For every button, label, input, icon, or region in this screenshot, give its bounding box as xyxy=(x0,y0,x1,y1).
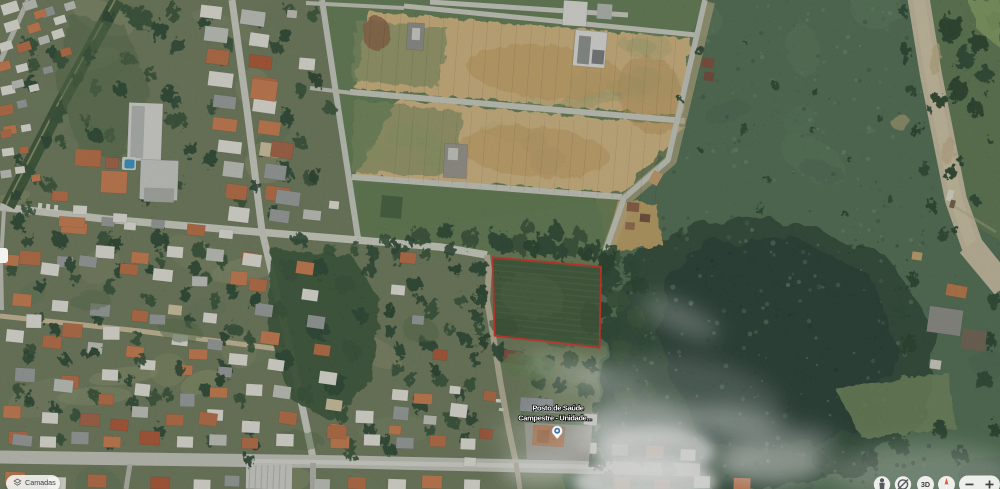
svg-text:3D: 3D xyxy=(921,480,930,489)
svg-text:Campestre - Unidade...: Campestre - Unidade... xyxy=(518,414,592,423)
svg-text:Camadas: Camadas xyxy=(25,478,56,487)
svg-text:Posto de Saúde: Posto de Saúde xyxy=(532,404,583,413)
